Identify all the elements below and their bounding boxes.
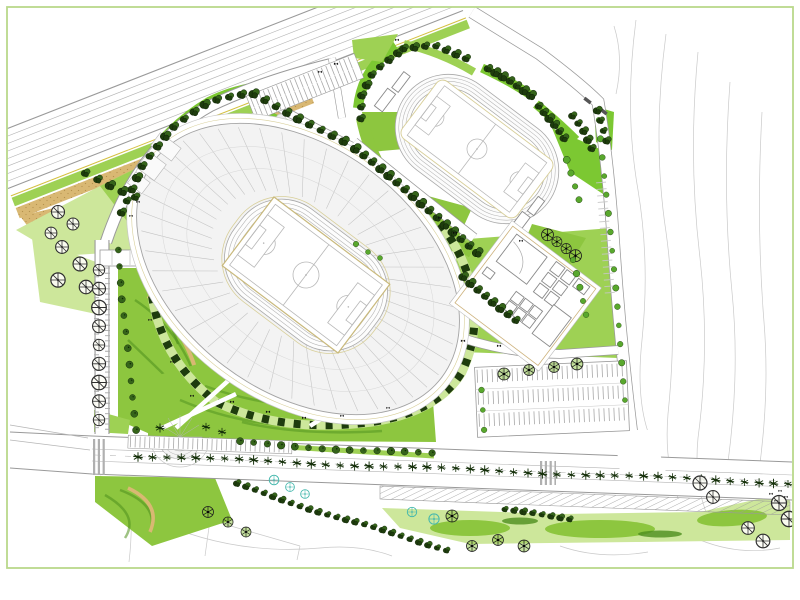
tree-shrub-lawn-shrubs	[395, 39, 399, 41]
bottom-green-mound	[430, 520, 510, 536]
tree-round-se-outline-trees	[742, 522, 755, 535]
tree-round-nw-outline-trees	[73, 257, 87, 271]
tree-spoke-track-se-spoke-trees	[542, 229, 554, 241]
tree-dark-south-diagonal-trees	[252, 486, 259, 492]
tree-cyan-cyan-trees	[301, 490, 310, 499]
tree-leaf-track-sw-lawn-trees	[353, 241, 359, 247]
tree-round-west-road-outline-trees	[93, 339, 104, 350]
tree-dark-track-n-trees	[451, 49, 461, 58]
tree-leaf-track-e-leaf-trees	[568, 170, 574, 176]
tree-dark-south-diagonal-trees	[407, 536, 414, 542]
tree-mid-boulevard-north-trees	[277, 441, 285, 449]
tree-spoke-parking-row-trees	[571, 358, 583, 370]
tree-leaf-parking-edge-trees	[481, 427, 487, 433]
tree-spoke-parking-row-trees	[498, 368, 510, 380]
tree-leaf-east-road-trees	[617, 341, 623, 347]
tree-leaf-buildings-e-trees	[570, 257, 576, 263]
tree-mid-boulevard-north-trees	[291, 443, 298, 450]
tree-leaf-buildings-e-trees	[577, 284, 583, 290]
tree-spoke-sw-spoke-trees	[203, 507, 214, 518]
tree-mid-boulevard-north-trees	[251, 439, 257, 445]
tree-cyan-cyan-trees	[429, 514, 439, 524]
tree-dark-south-diagonal-trees	[424, 541, 432, 548]
bottom-dark-streak	[502, 518, 538, 525]
bottom-green-mound	[545, 520, 655, 538]
tree-leaf-track-sw-lawn-trees	[365, 249, 370, 254]
tree-spoke-parking-row-trees	[549, 362, 560, 373]
tree-cyan-cyan-trees	[269, 475, 279, 485]
tree-leaf-east-road-trees	[622, 398, 627, 403]
tree-round-se-outline-trees	[693, 476, 707, 490]
tree-dark-track-e-trees-2	[568, 112, 577, 120]
tree-dark-track-e-trees-2	[575, 119, 583, 126]
tree-round-west-road-outline-trees	[92, 357, 105, 370]
tree-mid-west-road-inner-trees	[121, 313, 127, 319]
tree-mid-boulevard-north-trees	[387, 447, 395, 455]
tree-mid-west-road-inner-trees	[131, 410, 138, 417]
tree-spoke-bottom-spoke-trees	[446, 510, 458, 522]
tree-leaf-east-road-trees	[611, 267, 617, 273]
tree-mid-boulevard-north-trees	[401, 448, 408, 455]
tree-leaf-east-road-trees	[613, 285, 619, 291]
tree-round-se-outline-trees	[707, 491, 720, 504]
tree-mid-west-road-inner-trees	[115, 247, 121, 253]
tree-round-nw-outline-trees	[51, 273, 65, 287]
site-plan-page	[0, 0, 800, 600]
contour-line	[758, 112, 766, 478]
tree-dark-south-diagonal-trees	[388, 529, 396, 536]
tree-round-west-road-outline-trees	[93, 264, 104, 275]
tree-spoke-track-se-spoke-trees	[552, 237, 562, 247]
tree-leaf-east-road-trees	[602, 174, 607, 179]
tree-mid-west-road-inner-trees	[117, 279, 124, 286]
tree-dark-south-diagonal-trees	[297, 503, 304, 509]
tree-dark-south-diagonal-trees	[398, 533, 405, 539]
tree-leaf-buildings-e-trees	[580, 298, 585, 303]
tree-dark-south-diagonal-trees	[233, 479, 241, 486]
tree-dark-south-diagonal-trees	[443, 547, 450, 553]
site-plan-drawing	[0, 0, 800, 600]
tree-spoke-bottom-spoke-trees	[493, 535, 504, 546]
tree-leaf-east-road-trees	[620, 378, 626, 384]
tree-dark-south-diagonal-trees	[314, 508, 322, 515]
contour-line	[726, 82, 735, 462]
tree-round-west-road-outline-trees	[92, 375, 107, 390]
tree-round-nw-outline-trees	[79, 280, 93, 294]
tree-spoke-sw-spoke-trees	[241, 527, 251, 537]
tree-dark-south-diagonal-trees	[242, 483, 250, 490]
tree-leaf-track-sw-lawn-trees	[377, 255, 382, 260]
tree-mid-boulevard-north-trees	[346, 447, 353, 454]
tree-round-west-road-outline-trees	[93, 414, 104, 425]
tree-round-west-road-outline-trees	[93, 395, 106, 408]
tree-round-se-outline-trees	[772, 496, 787, 511]
tree-spoke-sw-spoke-trees	[223, 517, 233, 527]
tree-leaf-east-road-trees	[599, 154, 605, 160]
east-junction	[614, 430, 666, 472]
tree-dark-south-diagonal-trees	[261, 490, 268, 496]
tree-leaf-buildings-e-trees	[573, 270, 580, 277]
tree-mid-boulevard-north-trees	[264, 441, 271, 448]
plot-boundary-line	[205, 520, 300, 560]
contour-line	[659, 34, 678, 498]
tree-leaf-buildings-e-trees	[583, 312, 589, 318]
tree-leaf-east-road-trees	[616, 323, 621, 328]
tree-dark-south-diagonal-trees	[434, 544, 441, 550]
tree-dark-track-n-trees	[462, 54, 471, 62]
tree-round-west-road-outline-trees	[93, 320, 106, 333]
tree-mid-west-road-inner-trees	[118, 296, 125, 303]
tree-mid-boulevard-north-trees	[332, 446, 340, 454]
tree-leaf-east-road-trees	[607, 229, 613, 235]
tree-dark-south-diagonal-trees	[361, 521, 368, 527]
tree-dark-track-e-trees-2	[583, 135, 593, 144]
tree-mid-boulevard-north-trees	[305, 445, 311, 451]
bottom-dark-streak	[638, 531, 682, 538]
tree-dark-south-diagonal-trees	[333, 514, 340, 520]
tree-round-west-road-outline-trees	[93, 282, 106, 295]
tree-round-nw-outline-trees	[56, 241, 69, 254]
tree-round-se-outline-trees	[756, 534, 770, 548]
tree-dark-bottom-band-trees	[502, 506, 509, 512]
tree-dark-south-diagonal-trees	[278, 496, 286, 503]
tree-spoke-bottom-spoke-trees	[467, 541, 478, 552]
tree-dark-south-diagonal-trees	[305, 505, 313, 512]
tree-spoke-bottom-spoke-trees	[518, 540, 530, 552]
tree-dark-track-e-trees-2	[579, 127, 588, 135]
tree-dark-south-diagonal-trees	[324, 511, 331, 517]
tree-round-nw-outline-trees	[52, 206, 65, 219]
tree-leaf-east-road-trees	[610, 248, 615, 253]
tree-dark-south-diagonal-trees	[415, 538, 423, 545]
tree-leaf-track-e-leaf-trees	[576, 197, 582, 203]
tree-mid-west-road-inner-trees	[133, 427, 140, 434]
tree-spoke-parking-row-trees	[524, 365, 535, 376]
contour-line	[614, 26, 620, 94]
tree-leaf-east-road-trees	[618, 360, 624, 366]
tree-mid-boulevard-north-trees	[429, 450, 436, 457]
tree-leaf-track-e-leaf-trees	[572, 184, 578, 190]
tree-mid-west-road-inner-trees	[126, 361, 133, 368]
tree-spoke-track-se-spoke-trees	[561, 244, 571, 254]
tree-dark-south-diagonal-trees	[269, 493, 277, 500]
tree-mid-boulevard-north-trees	[360, 447, 366, 453]
contour-line	[630, 20, 648, 432]
tree-leaf-east-road-trees	[604, 192, 610, 198]
tree-round-nw-outline-trees	[67, 218, 79, 230]
tree-mid-west-road-inner-trees	[123, 329, 129, 335]
tree-mid-west-road-inner-trees	[124, 345, 131, 352]
tree-mid-boulevard-north-trees	[415, 449, 421, 455]
contour-line	[560, 546, 648, 555]
tree-mid-west-road-inner-trees	[117, 263, 123, 269]
tree-round-nw-outline-trees	[45, 227, 57, 239]
tree-mid-west-road-inner-trees	[130, 394, 136, 400]
tree-dark-track-n-trees	[432, 42, 440, 49]
tree-mid-boulevard-north-trees	[319, 445, 326, 452]
tree-leaf-track-e-leaf-trees	[563, 156, 570, 163]
tree-dark-south-diagonal-trees	[288, 500, 295, 506]
tree-cyan-cyan-trees	[286, 483, 295, 492]
tree-mid-boulevard-north-trees	[236, 438, 243, 445]
tree-dark-south-diagonal-trees	[370, 524, 377, 530]
tree-leaf-parking-edge-trees	[479, 387, 485, 393]
tree-leaf-east-road-trees	[614, 304, 620, 310]
tree-dark-south-diagonal-trees	[379, 526, 387, 533]
tree-mid-boulevard-north-trees	[374, 447, 381, 454]
tree-mid-west-road-inner-trees	[128, 378, 134, 384]
tree-dark-south-diagonal-trees	[342, 516, 350, 523]
tree-round-west-road-outline-trees	[92, 300, 107, 315]
tree-leaf-east-road-trees	[605, 210, 611, 216]
tree-leaf-parking-edge-trees	[480, 407, 485, 412]
tree-dark-south-diagonal-trees	[351, 518, 359, 525]
tree-cyan-cyan-trees	[407, 507, 416, 516]
contour-line	[693, 52, 706, 512]
tree-dark-track-n-trees	[442, 46, 451, 54]
